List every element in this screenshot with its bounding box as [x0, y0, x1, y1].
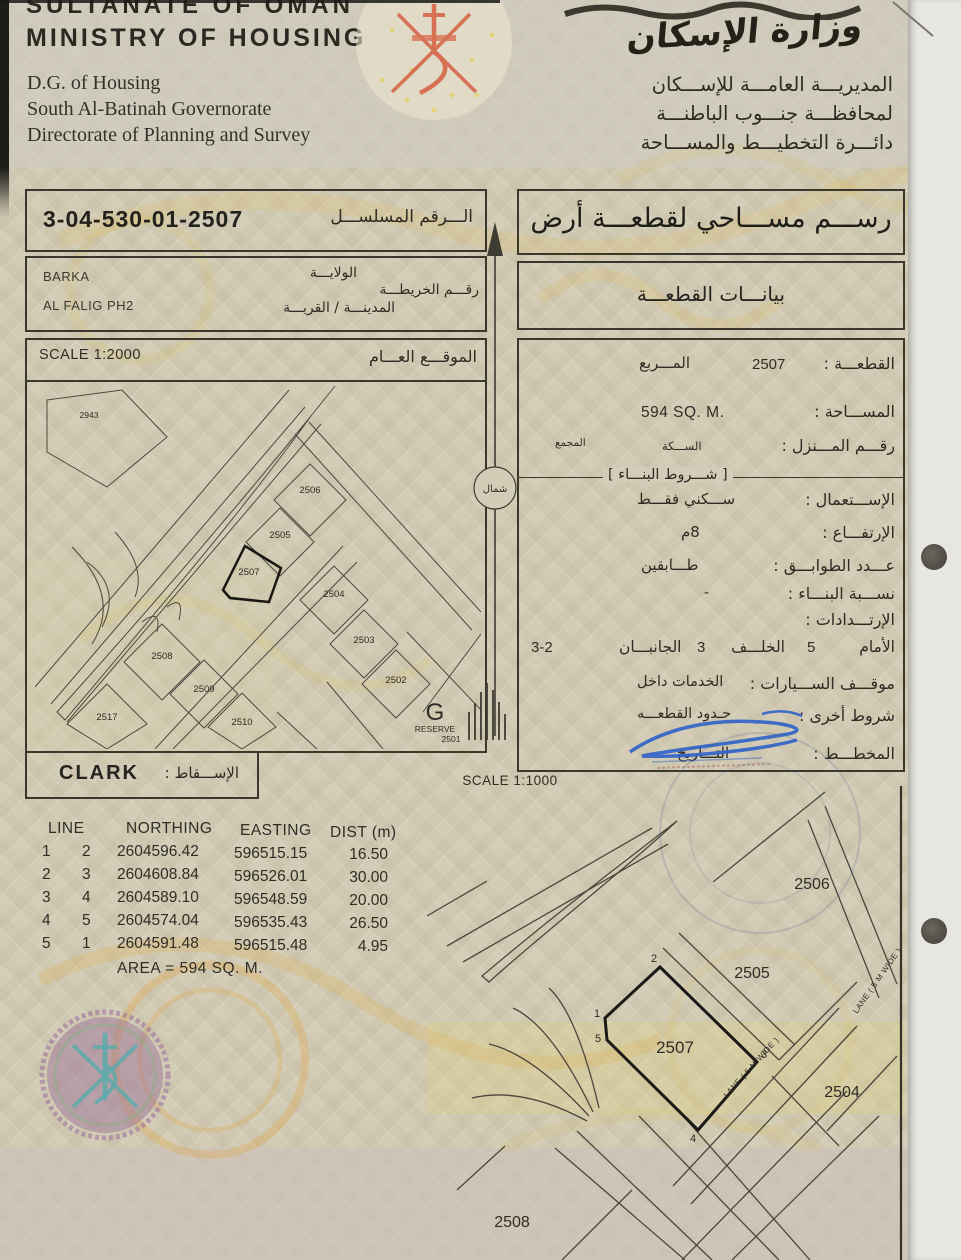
- house-number-label: رقـــم المـــنزل :: [781, 436, 895, 455]
- reserve-plot-number: 2501: [442, 734, 461, 744]
- map-plot-label: 2508: [151, 651, 172, 662]
- plot-data-title: بيانـــات القطعـــة: [519, 282, 903, 306]
- page-right-margin: [908, 0, 961, 1260]
- table-cell: 1: [42, 843, 51, 861]
- table-cell: 596526.01: [234, 868, 307, 886]
- detail-plot-label: 2505: [734, 965, 770, 982]
- north-arrow-head: [487, 222, 503, 256]
- height-label: الإرتفـــاع :: [822, 523, 895, 542]
- vertex-label: 5: [595, 1033, 601, 1045]
- drawing-title: رســـم مســـاحي لقطعـــة أرض: [519, 203, 903, 234]
- parking-label: موقـــف الســـيارات :: [750, 674, 895, 693]
- serial-number-label: الـــرقم المسلســـل: [330, 207, 473, 227]
- map-plot-label: 2505: [269, 530, 290, 541]
- table-cell: 596535.43: [234, 914, 307, 932]
- scan-edge-left: [0, 0, 9, 168]
- scan-edge-top: [0, 0, 500, 3]
- dept-ar-line1: المديريـــة العامـــة للإســـكان: [641, 70, 893, 99]
- setback-front-value: 5: [807, 639, 815, 656]
- map-plot-label: 2517: [96, 712, 117, 723]
- table-cell: 2604608.84: [117, 866, 199, 884]
- map-plot-label: 2510: [231, 717, 252, 728]
- table-cell: 26.50: [330, 915, 388, 933]
- map-plot-label: 2507: [238, 567, 259, 578]
- city-village-value: AL FALIG PH2: [43, 298, 134, 313]
- holographic-emblem-stamp: [35, 1005, 175, 1145]
- table-cell: 2604589.10: [117, 889, 199, 907]
- wilaya-label: الولايـــة: [310, 265, 357, 281]
- table-cell: 4.95: [344, 938, 388, 956]
- location-map-drawing: 2943 2506 2505 2507 2504 2503 2502 2508 …: [27, 382, 481, 749]
- map-plot-label: 2943: [80, 410, 99, 420]
- setback-sides-label: الجانبـــان: [619, 638, 681, 656]
- map-plot-label: 2502: [385, 675, 406, 686]
- map-plot-label: 2506: [299, 485, 320, 496]
- plot-data-title-box: بيانـــات القطعـــة: [517, 261, 905, 330]
- dept-ar-line3: دائـــرة التخطيـــط والمســـاحة: [641, 128, 893, 157]
- area-note: AREA = 594 SQ. M.: [117, 960, 263, 978]
- table-cell: 3: [42, 889, 51, 907]
- wilaya-map-box: BARKA AL FALIG PH2 الولايـــة رقـــم الخ…: [25, 256, 487, 332]
- oman-national-emblem-icon: [352, 0, 517, 130]
- vertex-label: 2: [651, 953, 657, 965]
- plot-label: القطعـــة :: [824, 354, 895, 373]
- country-title: SULTANATE OF OMAN: [26, 0, 354, 20]
- projection-value: CLARK: [59, 762, 139, 785]
- north-label: شمال: [483, 484, 507, 495]
- parking-value: الخدمات داخل: [637, 674, 723, 690]
- col-header-line: LINE: [48, 820, 84, 838]
- location-map-scale-label: SCALE 1:2000: [39, 347, 141, 363]
- serial-number-box: 3-04-530-01-2507 الـــرقم المسلســـل: [25, 189, 487, 252]
- map-plot-label: 2503: [353, 635, 374, 646]
- city-village-label: المدينـــة / القريـــة: [283, 300, 395, 316]
- square-label: المـــربع: [639, 354, 690, 372]
- detail-plot-label: 2506: [794, 876, 830, 893]
- building-ratio-value: -: [704, 584, 709, 601]
- usage-label: الإســـتعمال :: [805, 490, 895, 509]
- vertex-label: 4: [690, 1133, 696, 1145]
- location-map-header: SCALE 1:2000 الموقـــع العـــام: [27, 340, 485, 382]
- col-header-northing: NORTHING: [126, 820, 212, 838]
- drawing-title-box: رســـم مســـاحي لقطعـــة أرض: [517, 189, 905, 255]
- dept-en-line1: D.G. of Housing: [27, 70, 310, 96]
- area-value: 594 SQ. M.: [641, 404, 724, 422]
- wilaya-value: BARKA: [43, 269, 90, 284]
- building-conditions-header: [ شـــروط البنـــاء ]: [603, 467, 733, 483]
- setback-back-value: 3: [697, 639, 705, 656]
- map-plot-label: 2504: [323, 589, 344, 600]
- setbacks-label: الإرتـــدادات :: [805, 610, 895, 629]
- table-cell: 5: [42, 935, 51, 953]
- dept-ar-line2: لمحافظـــة جنـــوب الباطنـــة: [641, 99, 893, 128]
- complex-sublabel: المجمع: [555, 437, 586, 449]
- col-header-dist: DIST (m): [330, 824, 397, 842]
- floors-label: عـــدد الطوابـــق :: [773, 556, 895, 575]
- col-header-easting: EASTING: [240, 822, 312, 840]
- table-cell: 30.00: [330, 869, 388, 887]
- pen-mark-top-right: [885, 0, 945, 45]
- table-cell: 2: [42, 866, 51, 884]
- table-cell: 596548.59: [234, 891, 307, 909]
- dept-en-line3: Directorate of Planning and Survey: [27, 122, 310, 148]
- detail-map-drawing: 1 2 3 4 5 2506 2505 2507 2504 2508 LANE …: [427, 786, 905, 1260]
- scanned-survey-document: SULTANATE OF OMAN MINISTRY OF HOUSING D.…: [0, 0, 961, 1260]
- table-cell: 16.50: [330, 846, 388, 864]
- table-cell: 2604596.42: [117, 843, 199, 861]
- table-cell: 2604574.04: [117, 912, 199, 930]
- table-cell: 2: [82, 843, 91, 861]
- reserve-letter: G: [426, 699, 445, 726]
- table-cell: 596515.15: [234, 845, 307, 863]
- planner-signature: [612, 700, 832, 784]
- scan-edge-left-fade: [0, 168, 9, 218]
- map-plot-label: 2509: [193, 684, 214, 695]
- dept-en-line2: South Al-Batinah Governorate: [27, 96, 310, 122]
- department-lines-en: D.G. of Housing South Al-Batinah Governo…: [27, 70, 310, 148]
- area-label: المســـاحة :: [814, 402, 895, 421]
- detail-plot-label: 2507: [656, 1038, 694, 1057]
- table-cell: 20.00: [330, 892, 388, 910]
- height-value: 8م: [681, 523, 700, 541]
- projection-box: CLARK الإســـقاط :: [25, 751, 259, 799]
- punch-hole-bottom: [921, 918, 947, 944]
- table-cell: 1: [82, 935, 91, 953]
- projection-label: الإســـقاط :: [165, 764, 239, 782]
- setback-back-label: الخلـــف: [731, 638, 785, 656]
- detail-plot-label: 2508: [494, 1214, 530, 1231]
- setback-front-label: الأمام: [859, 638, 895, 656]
- table-cell: 596515.48: [234, 937, 307, 955]
- table-cell: 5: [82, 912, 91, 930]
- street-sublabel: الســـكة: [662, 439, 702, 453]
- plot-number-value: 2507: [752, 356, 785, 373]
- table-cell: 4: [82, 889, 91, 907]
- general-location-map-box: SCALE 1:2000 الموقـــع العـــام: [25, 338, 487, 753]
- table-cell: 3: [82, 866, 91, 884]
- floors-value: طـــابقين: [641, 556, 698, 574]
- building-ratio-label: نســـبة البنـــاء :: [788, 584, 895, 603]
- department-lines-ar: المديريـــة العامـــة للإســـكان لمحافظـ…: [641, 70, 893, 157]
- punch-hole-top: [921, 544, 947, 570]
- vertex-label: 1: [594, 1008, 600, 1020]
- table-cell: 4: [42, 912, 51, 930]
- serial-number-value: 3-04-530-01-2507: [43, 206, 243, 233]
- lane-label: LANE ( 5 M WIDE ): [722, 1035, 781, 1099]
- usage-value: ســـكني فقـــط: [637, 490, 735, 508]
- detail-plot-label: 2504: [824, 1084, 860, 1101]
- table-cell: 2604591.48: [117, 935, 199, 953]
- reserve-word: RESERVE: [415, 724, 456, 734]
- setback-sides-value: 3-2: [531, 639, 553, 656]
- ministry-title: MINISTRY OF HOUSING: [26, 24, 366, 53]
